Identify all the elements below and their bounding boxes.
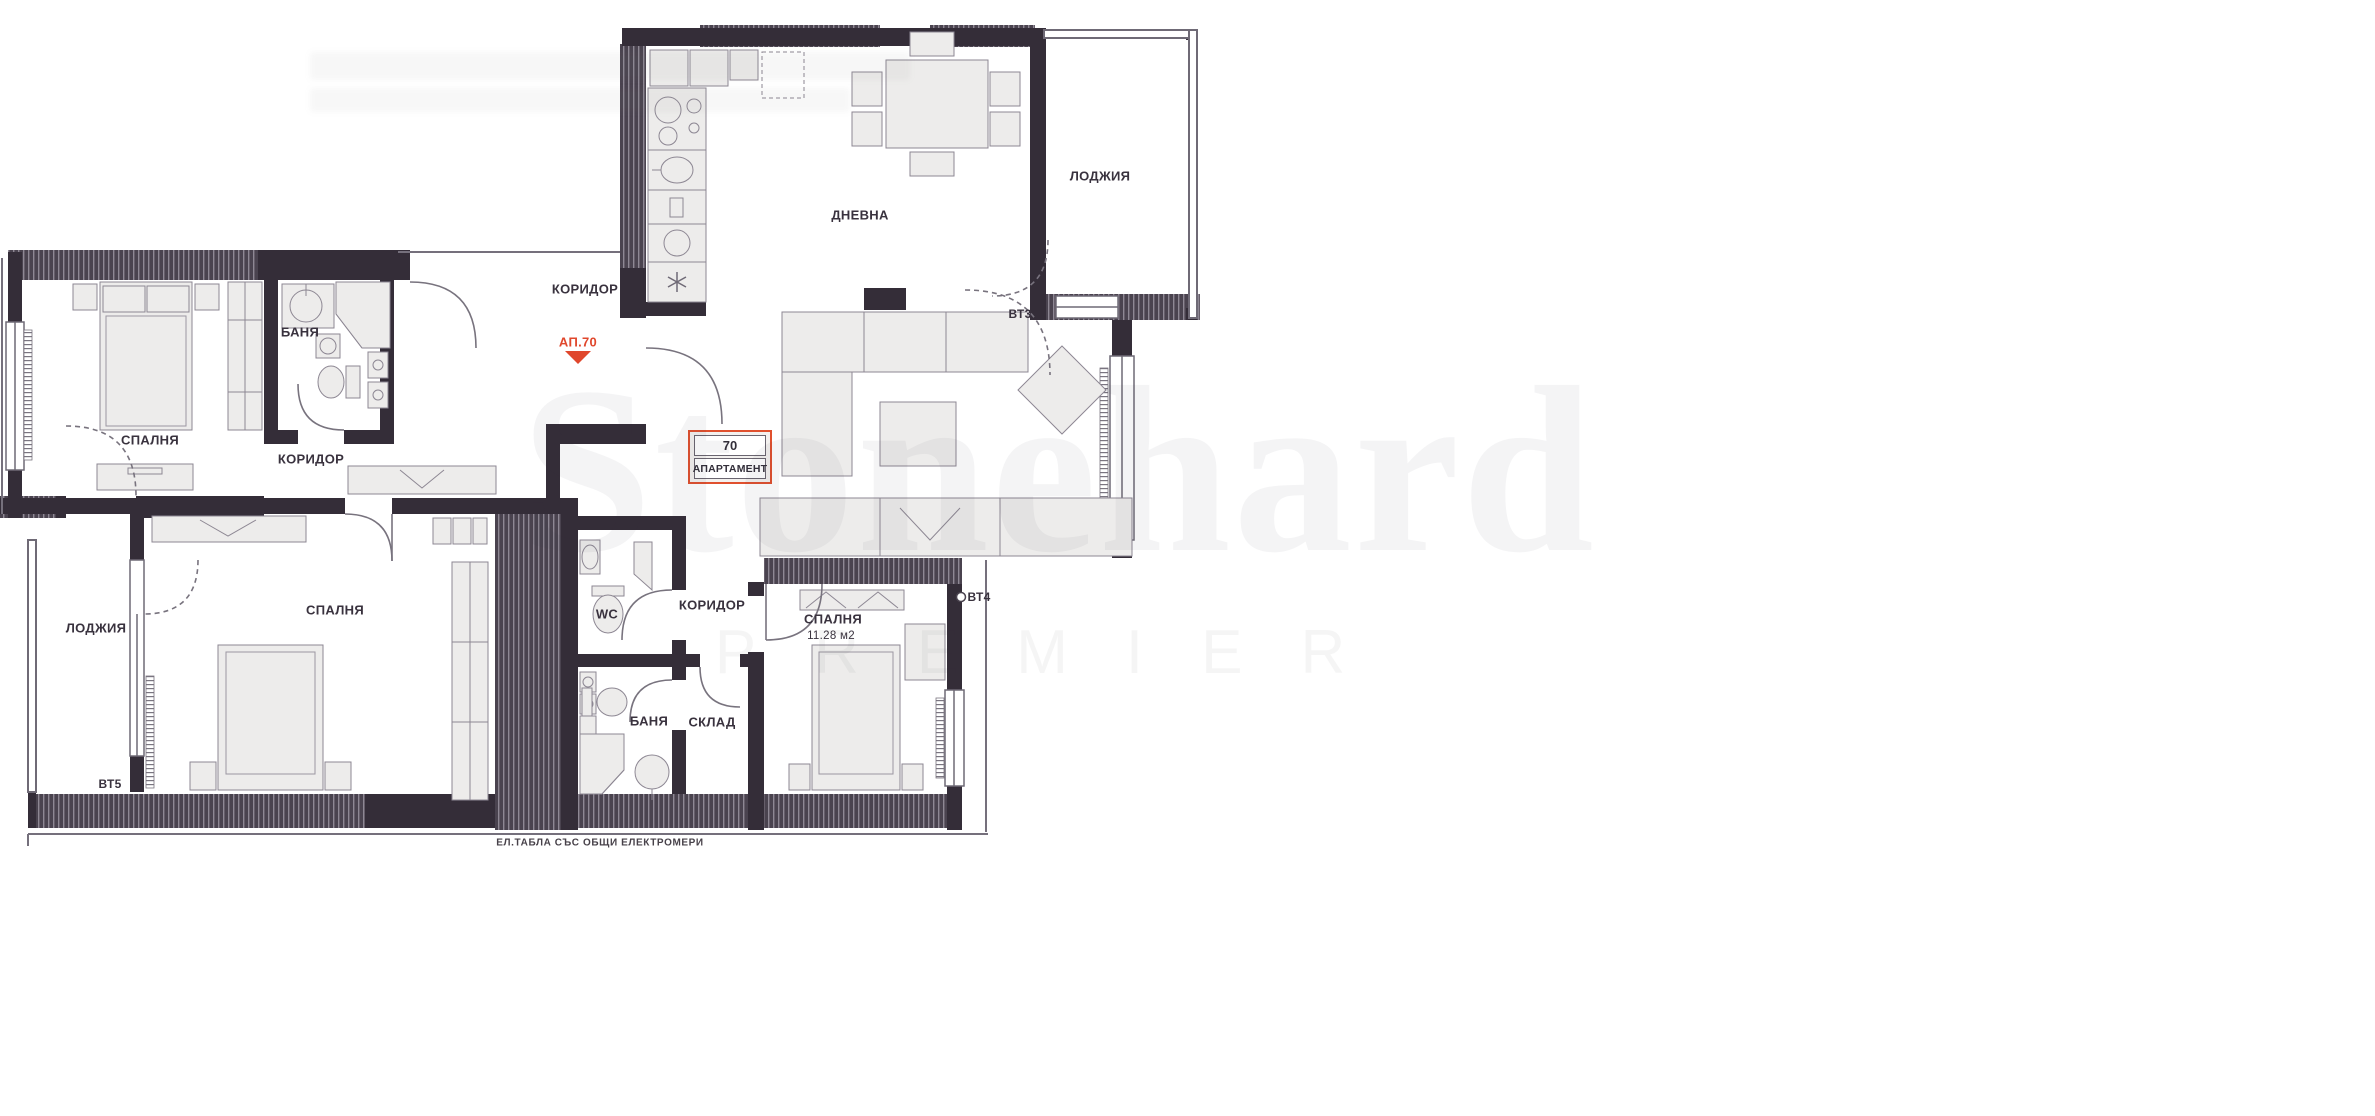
- label-vt5: ВТ5: [98, 777, 121, 791]
- chair: [852, 112, 882, 146]
- nightstand: [73, 284, 97, 310]
- room-label-wc: WC: [596, 607, 618, 622]
- closet-row-hall: [348, 466, 496, 494]
- shower-icon: [336, 282, 390, 348]
- chair: [990, 72, 1020, 106]
- toilet-icon: [597, 688, 627, 716]
- chair: [910, 32, 954, 56]
- dresser-2: [152, 516, 306, 542]
- bed-2: [218, 645, 323, 790]
- room-label-bedroom-1: СПАЛНЯ: [121, 433, 179, 448]
- room-label-bedroom-2: СПАЛНЯ: [306, 603, 364, 618]
- label-vt3: ВТ3: [1008, 307, 1031, 321]
- room-label-bath-2: БАНЯ: [630, 714, 668, 729]
- room-label-storage: СКЛАД: [688, 715, 735, 730]
- nightstand: [902, 764, 923, 790]
- room-label-living: ДНЕВНА: [831, 208, 888, 223]
- shower-icon: [580, 734, 624, 794]
- brand-watermark: Stonehard: [520, 352, 1540, 590]
- tv-panel: [864, 288, 906, 310]
- nightstand: [325, 762, 351, 790]
- room-label-loggia-left: ЛОДЖИЯ: [66, 621, 127, 636]
- nightstand: [195, 284, 219, 310]
- room-label-bath-1: БАНЯ: [281, 325, 319, 340]
- toilet-icon: [318, 366, 344, 398]
- room-label-corridor-mid: КОРИДОР: [278, 452, 344, 467]
- room-label-corridor-top: КОРИДОР: [552, 282, 618, 297]
- electrical-note: ЕЛ.ТАБЛА СЪС ОБЩИ ЕЛЕКТРОМЕРИ: [496, 838, 703, 849]
- faint-watermark-bar: [310, 88, 850, 112]
- floor-plan-page: КОРИДОР АП.70 ДНЕВНА ЛОДЖИЯ ВТ3 СПАЛНЯ Б…: [0, 0, 2375, 1116]
- nightstand: [190, 762, 216, 790]
- room-label-loggia-top: ЛОДЖИЯ: [1070, 169, 1131, 184]
- chair: [990, 112, 1020, 146]
- nightstand: [789, 764, 810, 790]
- brand-watermark-sub: PREMIER: [560, 622, 1500, 684]
- faint-watermark-bar: [310, 52, 910, 80]
- chair: [910, 152, 954, 176]
- sink-icon: [635, 755, 669, 789]
